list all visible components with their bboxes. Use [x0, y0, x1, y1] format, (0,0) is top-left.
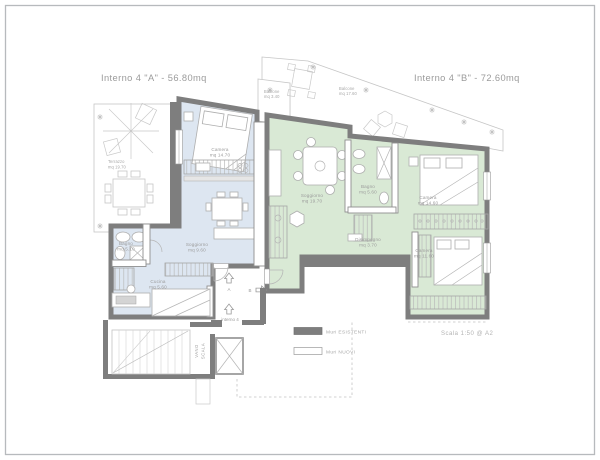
cabinet [269, 150, 281, 196]
apartment-a-title: Interno 4 "A" - 56.80mq [101, 73, 207, 83]
stairs [112, 330, 190, 374]
umbrella-icon [103, 103, 159, 159]
balcone-grande-area: mq 17.60 [339, 91, 357, 96]
legend-new-swatch [294, 348, 322, 355]
scale-note: Scala 1:50 @ A2 [441, 331, 493, 337]
bagno-b-label: Bagno [361, 184, 375, 189]
wardrobe [410, 296, 486, 309]
floor-plan-drawing: Interno 4 "A" - 56.80mq Interno 4 "B" - … [0, 0, 600, 460]
new-wall [143, 224, 150, 264]
camera-b1-area: mq 14.60 [418, 201, 439, 206]
toilet [380, 192, 389, 204]
legend-new-label: Muri NUOVI [326, 350, 355, 356]
stairwell-label-2: SCALA [201, 343, 206, 359]
terrace: Terrazzo mq 19.70 [94, 102, 180, 232]
thick-wall [300, 256, 410, 267]
kitchen-counter-b [269, 206, 287, 258]
new-wall [412, 232, 418, 287]
apartment-b-title: Interno 4 "B" - 72.60mq [414, 73, 520, 83]
washbasin [353, 150, 365, 159]
entrance-label: interno 4 [221, 317, 239, 322]
balcone-piccolo-area: mq 3.40 [264, 94, 280, 99]
door-opening [214, 264, 229, 269]
terrazzo-area: mq 19.70 [108, 165, 126, 170]
washbasin [353, 165, 365, 174]
camera-b2-label: Camera [415, 248, 433, 253]
window [484, 243, 491, 273]
bagno-a-label: Bagno [119, 241, 133, 246]
wardrobe [165, 263, 213, 276]
floor-plan-page: Interno 4 "A" - 56.80mq Interno 4 "B" - … [0, 0, 600, 460]
window [176, 130, 183, 164]
plant-icon [97, 114, 103, 120]
sink [196, 163, 210, 171]
cucina-a-label: Cucina [150, 279, 165, 284]
camera-b2 [434, 237, 482, 285]
soggiorno-a-area: mq 9.60 [188, 248, 206, 253]
elevator [216, 338, 243, 374]
stairwell-label-1: VANO [194, 344, 199, 358]
legend-existing-label: Muri ESISTENTI [326, 330, 366, 336]
pouf [290, 211, 304, 227]
entrance-a-letter: A [227, 287, 230, 292]
disimpegno-label: Disimpegno [355, 237, 381, 242]
soggiorno-a-label: Soggiorno [186, 242, 209, 247]
camera-b1-label: Camera [419, 195, 437, 200]
camera-b2-area: mq 11.60 [414, 254, 434, 259]
new-wall [392, 143, 398, 213]
door-opening [264, 269, 269, 284]
new-wall [345, 140, 351, 212]
bagno-b-area: mq 5.60 [359, 190, 377, 195]
nightstand [184, 112, 193, 121]
cucina-a-area: mq 5.60 [149, 285, 167, 290]
sideboard [214, 228, 256, 239]
nightstand [409, 157, 418, 166]
legend-existing-swatch [294, 328, 322, 335]
bagno-a-area: mq 5.10 [117, 247, 135, 252]
soggiorno-b-area: mq 19.70 [302, 199, 323, 204]
camera-a-label: Camera [211, 147, 229, 152]
window [484, 172, 491, 200]
camera-a-area: mq 14.70 [210, 153, 231, 158]
disimpegno-area: mq 3.70 [359, 243, 377, 248]
chair [127, 285, 135, 293]
kitchen-counter [184, 160, 256, 181]
new-wall [112, 260, 146, 267]
entrance-b-letter: B [248, 288, 251, 293]
new-wall [348, 207, 396, 213]
soggiorno-b-label: Soggiorno [301, 193, 324, 198]
terrazzo-label: Terrazzo [108, 159, 125, 164]
